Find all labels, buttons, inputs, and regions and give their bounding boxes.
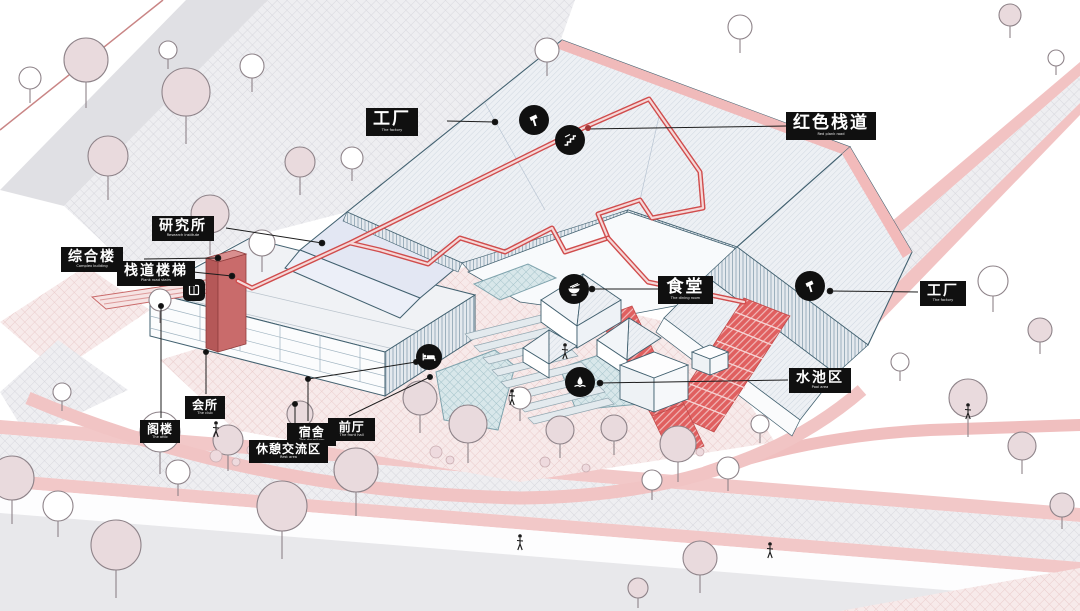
label-club: 会所 The club <box>185 396 225 419</box>
hammer-icon <box>519 105 549 135</box>
label-attic: 阁楼 The attic <box>140 420 180 443</box>
label-dining-room: 食堂 The dining room <box>658 276 713 304</box>
label-factory-top-en: The factory <box>378 129 405 133</box>
fountain-icon <box>565 367 595 397</box>
label-research-institute: 研究所 Research institute <box>152 216 214 241</box>
label-red-plank-road: 红色栈道 Red plank road <box>786 112 876 140</box>
bed-icon <box>416 344 442 370</box>
label-pool-area: 水池区 Pool area <box>789 368 851 393</box>
hammer-icon <box>795 271 825 301</box>
plank-stairs-tower <box>206 250 246 352</box>
label-factory-top: 工厂 The factory <box>366 108 418 136</box>
label-complex-building: 综合楼 Complex building <box>61 247 123 272</box>
noodle-bowl-icon <box>559 274 589 304</box>
label-factory-right: 工厂 The factory <box>920 281 966 306</box>
label-plank-road-stairs: 栈道楼梯 Plank road stairs <box>117 261 195 286</box>
label-factory-top-zh: 工厂 <box>373 111 411 128</box>
architectural-axon-diagram: 工厂 The factory 红色栈道 Red plank road 研究所 R… <box>0 0 1080 611</box>
label-front-hall: 前厅 The front hall <box>328 418 375 441</box>
label-rest-area: 休憩交流区 Rest area <box>249 440 328 463</box>
site-plan-drawing <box>0 0 1080 611</box>
stairs-icon <box>555 125 585 155</box>
